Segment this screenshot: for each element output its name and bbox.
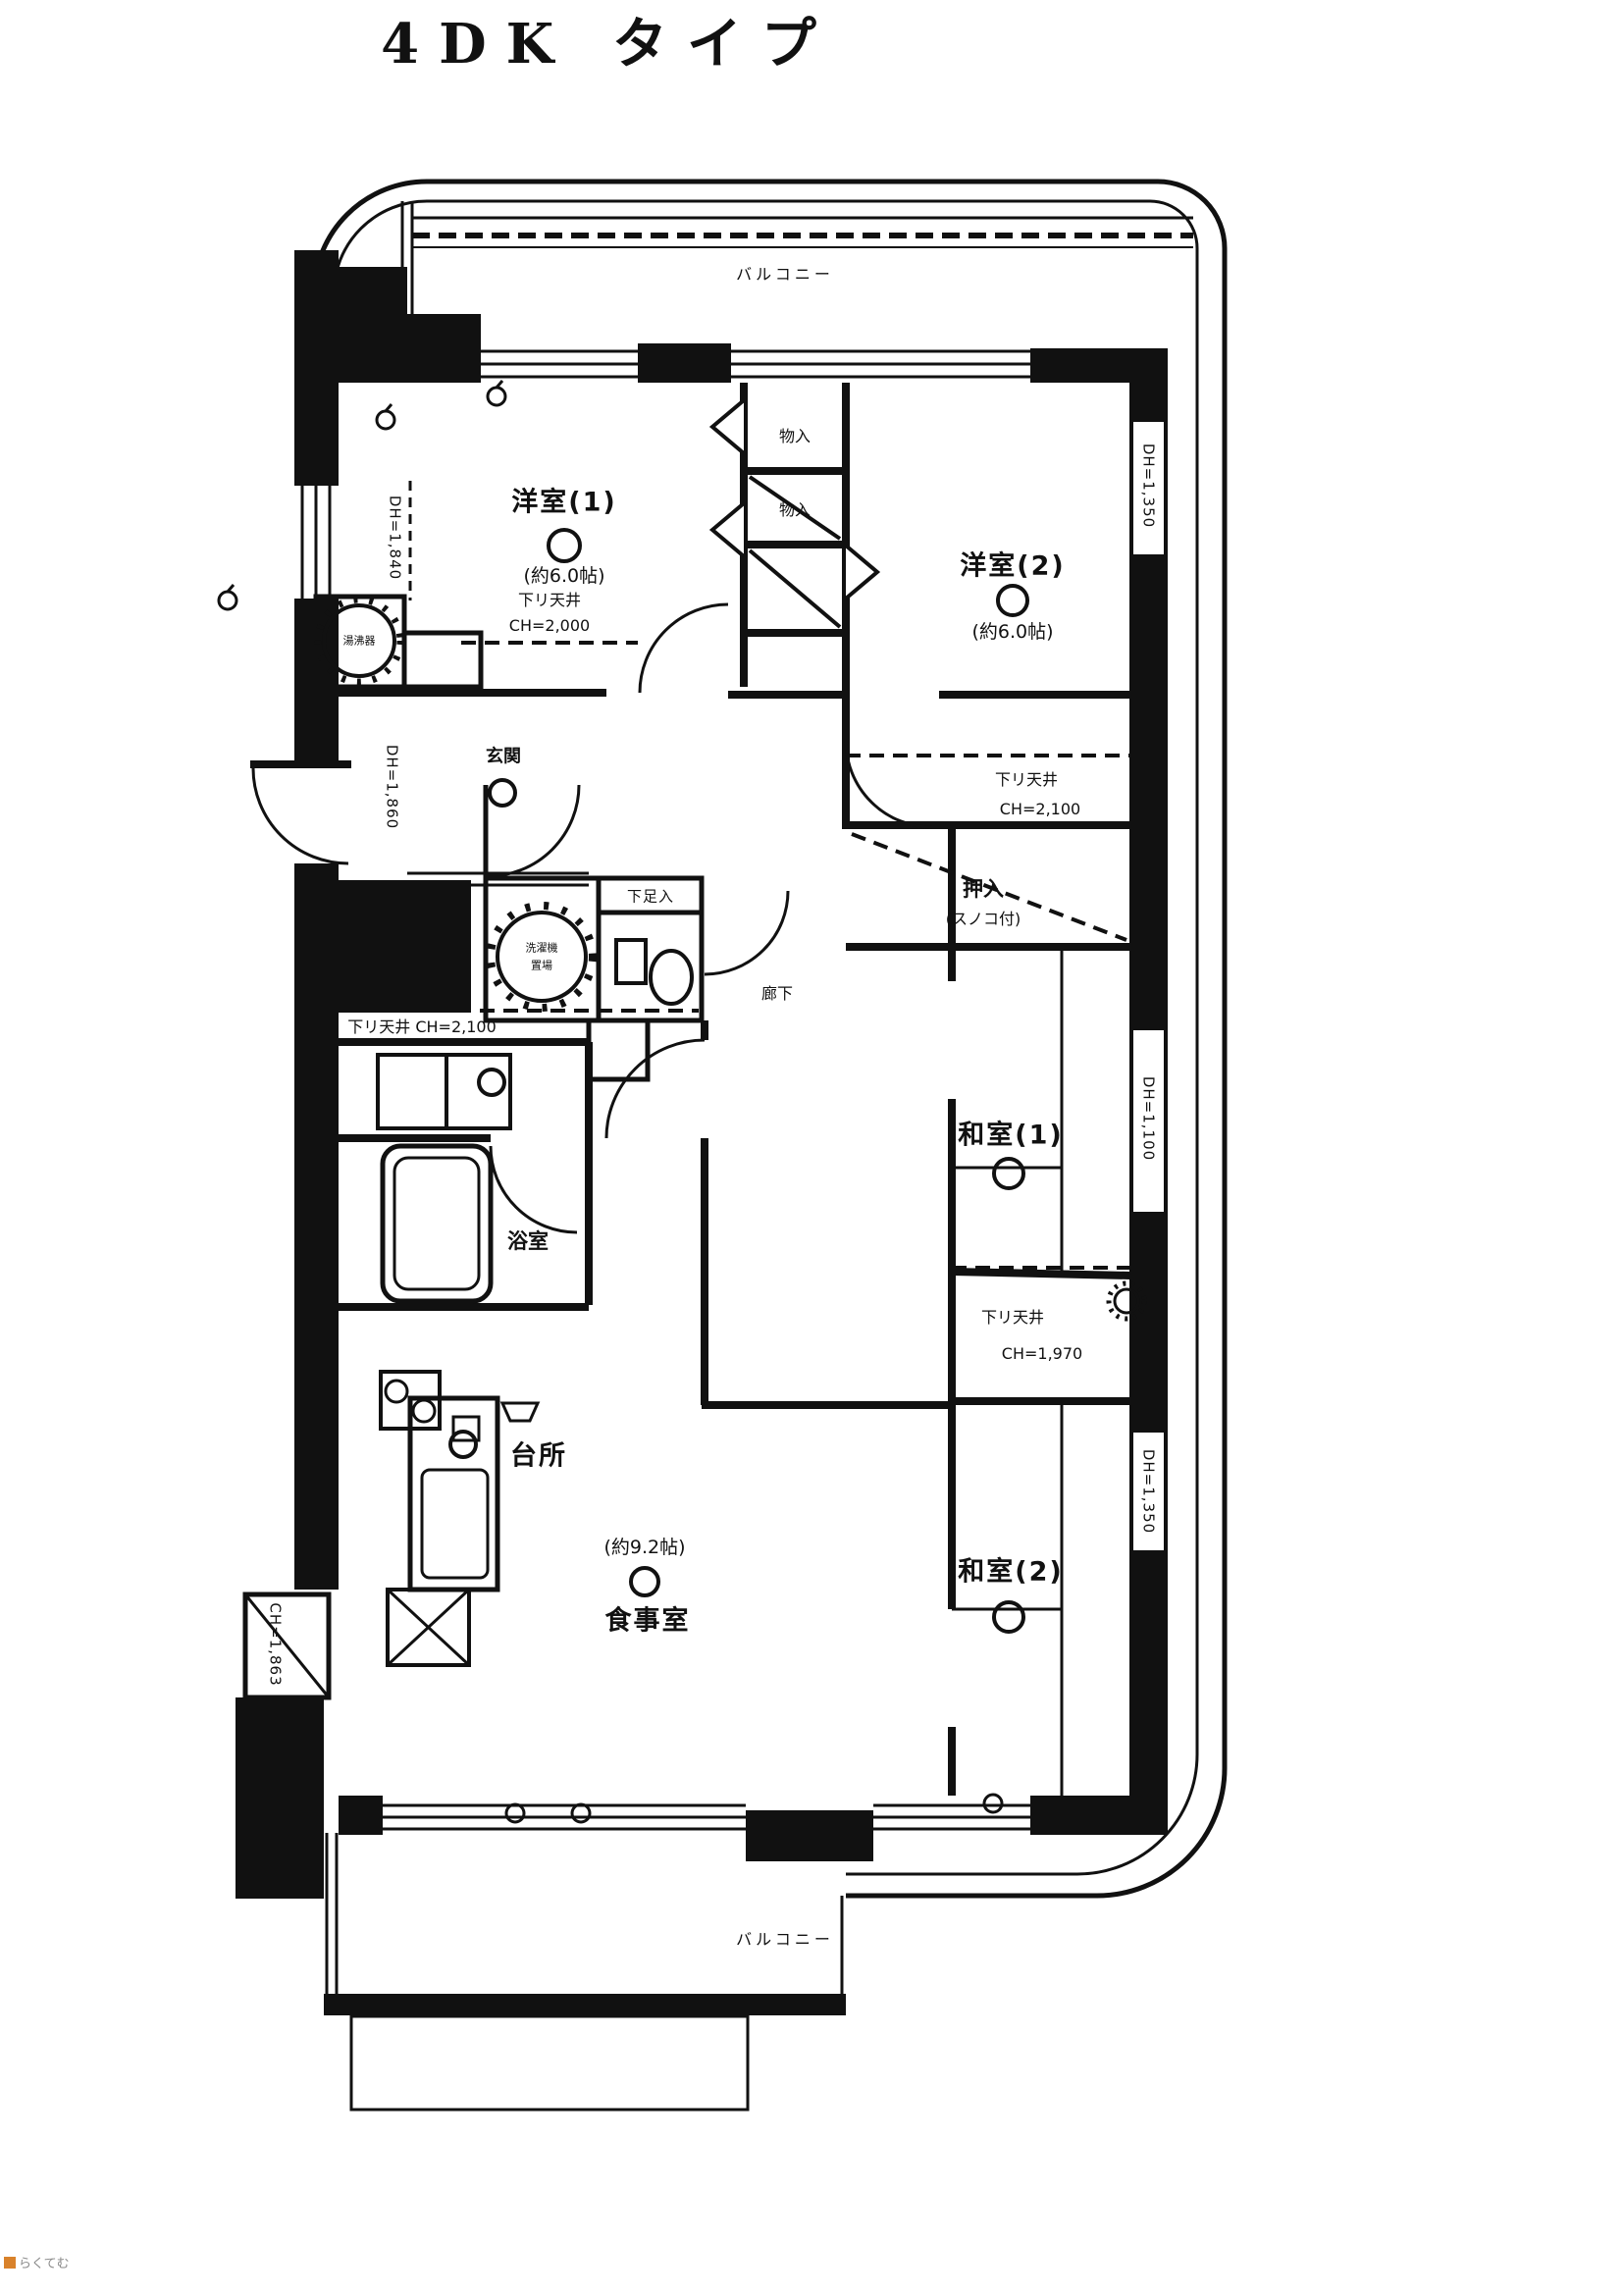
- wall-mark-right-upper: DH=1,350: [1139, 444, 1156, 528]
- watermark: らくてむ: [4, 2253, 70, 2271]
- page-title: 4DK タイプ: [381, 13, 836, 76]
- room-entrance-label: 玄関: [486, 748, 521, 768]
- room-japanese1-label: 和室(1): [958, 1120, 1063, 1150]
- water-heater-label: 湯沸器: [343, 634, 376, 647]
- balcony-bottom-lines: [327, 1833, 842, 2110]
- room-dining-size: (約9.2帖): [603, 1538, 685, 1559]
- room-western2-label: 洋室(2): [960, 550, 1065, 581]
- lowered-ceiling-kitchen: 下リ天井 CH=2,100: [347, 1018, 497, 1036]
- closet1-label: 物入: [779, 428, 811, 445]
- laundry-label-2: 置場: [531, 959, 552, 971]
- shoebox-label: 下足入: [627, 888, 674, 905]
- wall-mark-left-upper: DH=1,840: [386, 496, 402, 580]
- lowered-ceiling-anteroom: 下リ天井: [995, 771, 1058, 789]
- room-kitchen-label: 台所: [510, 1440, 567, 1471]
- outline-inner: [334, 201, 1197, 1874]
- watermark-logo-icon: [4, 2257, 16, 2269]
- wall-mark-left-lower: DH=1,860: [383, 745, 399, 829]
- wall-mark-right-lower: DH=1,350: [1139, 1449, 1156, 1534]
- lowered-ceiling-hall: 下リ天井: [518, 592, 581, 609]
- lowered-ceiling-anteroom-ch: CH=2,100: [1000, 801, 1080, 818]
- room-western1-label: 洋室(1): [511, 487, 616, 517]
- room-western1-size: (約6.0帖): [523, 566, 604, 588]
- room-corridor-label: 廊下: [761, 985, 793, 1003]
- wall-mark-bottom-left: CH=1,863: [266, 1602, 283, 1686]
- balcony-top-label: バルコニー: [736, 266, 834, 284]
- lowered-ceiling-j2-ch: CH=1,970: [1002, 1345, 1082, 1363]
- bathtub-icon: [383, 1146, 491, 1301]
- toilet-icon: [616, 940, 692, 1004]
- watermark-text: らくてむ: [19, 2253, 70, 2271]
- lowered-ceiling-j2: 下リ天井: [981, 1309, 1044, 1327]
- room-japanese2-label: 和室(2): [958, 1556, 1063, 1587]
- closet2-label: 物入: [779, 501, 811, 519]
- oshiire-label: 押入: [963, 877, 1004, 901]
- room-western2-size: (約6.0帖): [971, 622, 1053, 644]
- vanity-icon: [378, 1055, 510, 1128]
- laundry-label-1: 洗濯機: [526, 941, 558, 954]
- balcony-bottom-label: バルコニー: [736, 1931, 834, 1949]
- floorplan-drawing: [0, 0, 1623, 2296]
- oshiire-note: (スノコ付): [946, 911, 1021, 928]
- washing-machine-icon: [491, 906, 593, 1008]
- room-bath-label: 浴室: [507, 1229, 549, 1253]
- kitchen-fixtures: [381, 1372, 538, 1665]
- lowered-ceiling-hall-ch: CH=2,000: [509, 617, 590, 635]
- wall-mark-right-middle: DH=1,100: [1139, 1076, 1156, 1161]
- floorplan-page: 4DK タイプ バルコニー バルコニー 洋室(1) (約6.0帖) 洋室(2) …: [0, 0, 1623, 2296]
- room-dining-label: 食事室: [605, 1605, 691, 1636]
- tatami-lines: [952, 947, 1062, 1796]
